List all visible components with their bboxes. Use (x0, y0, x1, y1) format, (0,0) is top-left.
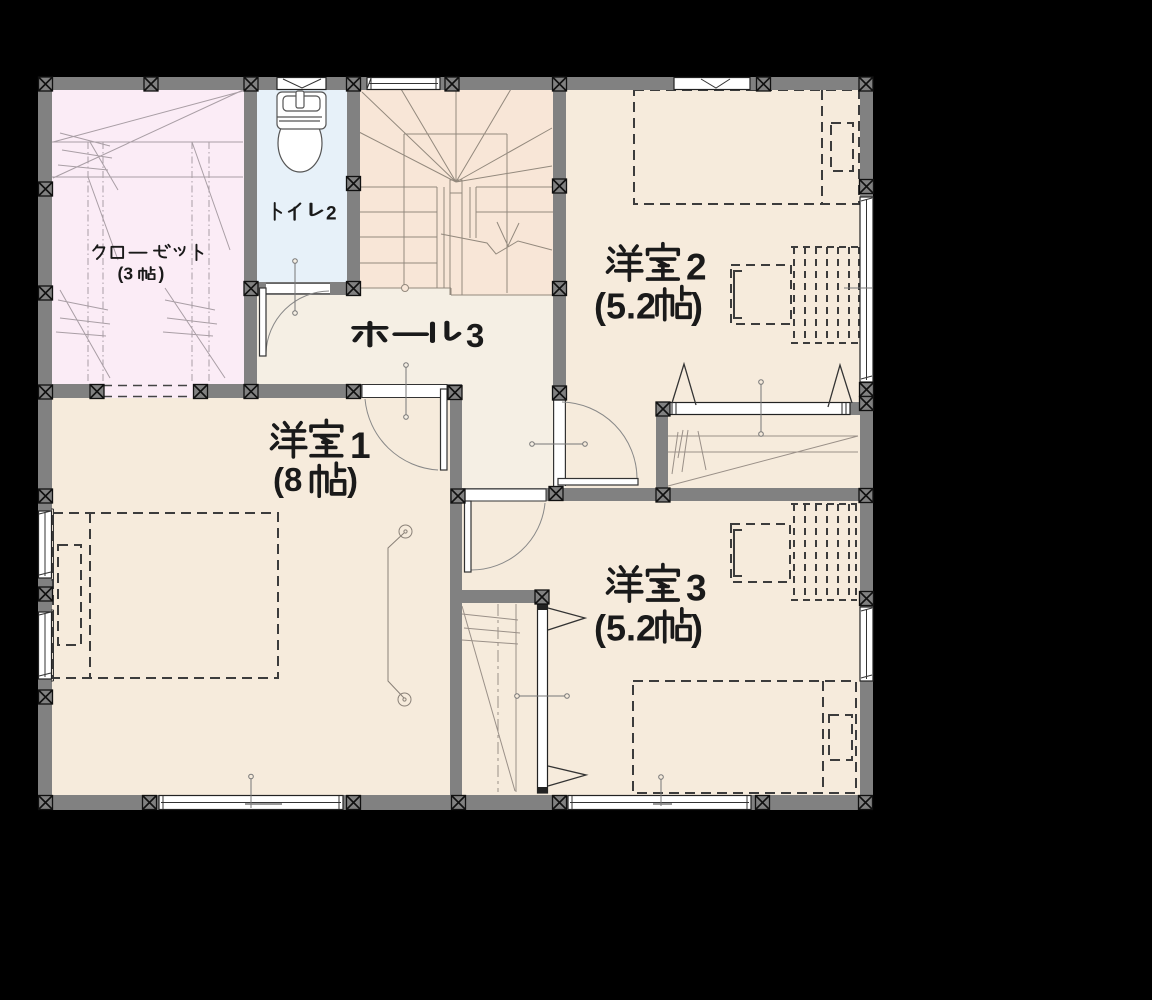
svg-text:3: 3 (466, 317, 484, 354)
svg-text:2: 2 (326, 204, 337, 225)
svg-text:3: 3 (686, 568, 707, 609)
svg-text:): ) (691, 286, 703, 327)
svg-text:(5.2: (5.2 (594, 286, 656, 327)
svg-text:1: 1 (350, 425, 371, 466)
svg-text:(3: (3 (118, 264, 134, 284)
svg-text:): ) (691, 608, 703, 649)
svg-text:): ) (347, 461, 358, 498)
svg-text:): ) (159, 264, 165, 284)
svg-text:2: 2 (686, 247, 707, 288)
svg-text:(5.2: (5.2 (594, 608, 656, 649)
svg-text:(8: (8 (273, 461, 302, 498)
